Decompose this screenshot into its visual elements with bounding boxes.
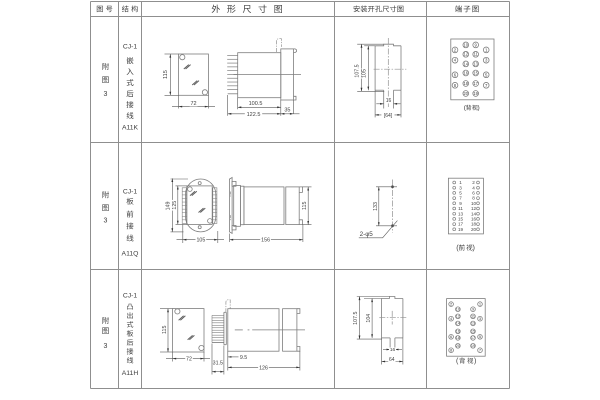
svg-text:[64]: [64] [384, 113, 393, 119]
svg-text:18: 18 [464, 81, 469, 86]
svg-text:31.5: 31.5 [213, 360, 223, 366]
svg-text:A11H: A11H [122, 370, 139, 377]
svg-text:20: 20 [456, 344, 460, 348]
svg-text:149: 149 [165, 202, 171, 211]
svg-text:107.5: 107.5 [354, 64, 360, 77]
svg-text:13: 13 [471, 322, 475, 326]
svg-text:): ) [472, 243, 474, 252]
svg-text:CJ-1: CJ-1 [123, 43, 138, 50]
svg-text:72: 72 [190, 101, 196, 107]
svg-text:12: 12 [464, 52, 469, 57]
svg-text:107.5: 107.5 [353, 312, 359, 325]
svg-text:100.5: 100.5 [249, 101, 263, 107]
svg-text:16: 16 [456, 330, 460, 334]
svg-text:3: 3 [104, 343, 108, 350]
svg-text:115: 115 [163, 70, 169, 79]
svg-text:14: 14 [456, 322, 460, 326]
svg-text:CJ-1: CJ-1 [123, 189, 138, 196]
svg-text:10: 10 [464, 42, 469, 47]
svg-text:3: 3 [104, 217, 108, 224]
svg-text:18: 18 [456, 336, 460, 340]
svg-text:72: 72 [186, 356, 192, 362]
svg-text:): ) [477, 105, 479, 112]
svg-text:2-φ5: 2-φ5 [360, 231, 374, 238]
svg-text:115: 115 [302, 202, 308, 210]
svg-text:19: 19 [458, 227, 464, 232]
svg-text:10: 10 [456, 308, 460, 312]
svg-text:125: 125 [172, 201, 178, 210]
svg-text:3: 3 [104, 91, 108, 98]
svg-text:): ) [474, 358, 476, 365]
svg-text:104: 104 [366, 314, 372, 323]
svg-text:35: 35 [284, 108, 290, 114]
svg-text:14: 14 [464, 61, 469, 66]
svg-text:133: 133 [373, 202, 379, 211]
svg-text:19: 19 [473, 91, 478, 96]
svg-text:156: 156 [261, 238, 270, 244]
svg-text:19: 19 [471, 344, 475, 348]
svg-text:64: 64 [389, 357, 395, 363]
svg-text:115: 115 [162, 326, 168, 334]
svg-text:20: 20 [471, 227, 477, 232]
svg-text:17: 17 [471, 336, 475, 340]
svg-text:16: 16 [386, 98, 392, 104]
svg-text:16: 16 [464, 70, 469, 75]
svg-text:20: 20 [464, 91, 469, 96]
svg-text:9.5: 9.5 [240, 355, 247, 361]
svg-text:13: 13 [473, 61, 478, 66]
svg-text:11: 11 [471, 315, 475, 319]
svg-text:15: 15 [471, 330, 475, 334]
svg-text:105: 105 [362, 69, 368, 78]
svg-text:11: 11 [474, 52, 479, 57]
svg-text:12: 12 [456, 315, 460, 319]
svg-text:122.5: 122.5 [247, 112, 261, 118]
svg-text:105: 105 [196, 238, 205, 244]
svg-text:126: 126 [259, 365, 268, 371]
svg-text:16: 16 [390, 347, 396, 353]
svg-text:17: 17 [473, 81, 478, 86]
svg-text:CJ-1: CJ-1 [123, 292, 138, 299]
svg-text:A11Q: A11Q [122, 251, 139, 258]
svg-text:A11K: A11K [122, 124, 139, 131]
svg-text:9: 9 [472, 308, 474, 312]
svg-text:15: 15 [473, 70, 478, 75]
